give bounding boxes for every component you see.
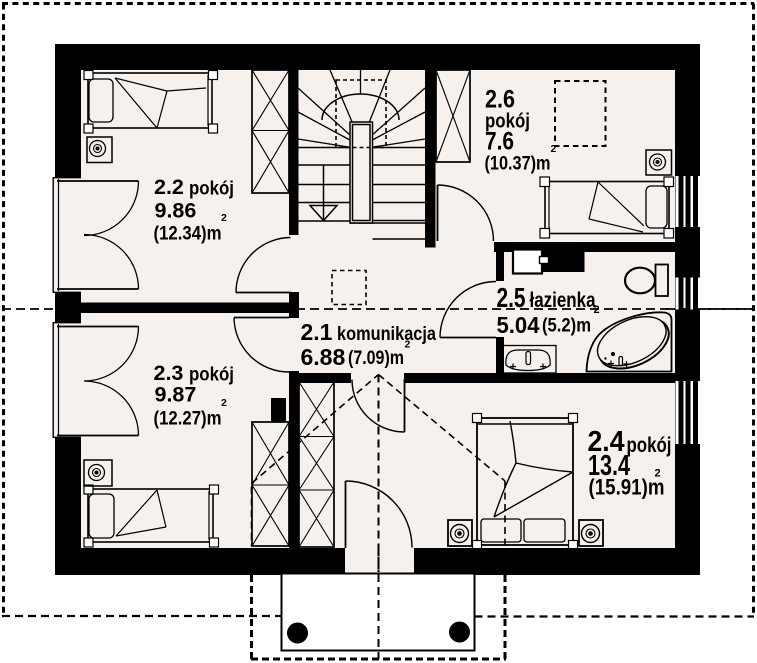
svg-text:2: 2: [221, 212, 227, 224]
svg-text:pokój: pokój: [627, 434, 672, 457]
svg-text:2.5: 2.5: [497, 282, 526, 313]
svg-text:2: 2: [551, 143, 557, 155]
svg-text:7.6: 7.6: [485, 128, 514, 156]
svg-text:(12.34)m: (12.34)m: [154, 224, 222, 245]
svg-text:(10.37)m: (10.37)m: [485, 153, 551, 175]
svg-text:2: 2: [221, 397, 227, 409]
svg-text:6.88: 6.88: [301, 344, 346, 370]
svg-text:5.04: 5.04: [497, 312, 540, 338]
svg-text:2: 2: [594, 304, 600, 316]
svg-text:(12.27)m: (12.27)m: [154, 409, 222, 430]
svg-text:2: 2: [405, 339, 411, 351]
svg-text:9.87: 9.87: [155, 383, 197, 407]
svg-text:(15.91)m: (15.91)m: [589, 475, 665, 500]
svg-text:komunikacja: komunikacja: [337, 323, 436, 345]
svg-text:2.3: 2.3: [154, 361, 184, 385]
svg-text:2.1: 2.1: [301, 319, 333, 345]
svg-text:9.86: 9.86: [155, 199, 197, 223]
svg-text:(5.2)m: (5.2)m: [542, 316, 591, 337]
svg-text:(7.09)m: (7.09)m: [348, 348, 404, 369]
svg-text:łazienka: łazienka: [530, 289, 596, 312]
svg-text:2.2: 2.2: [154, 175, 184, 199]
svg-text:pokój: pokój: [189, 179, 234, 200]
